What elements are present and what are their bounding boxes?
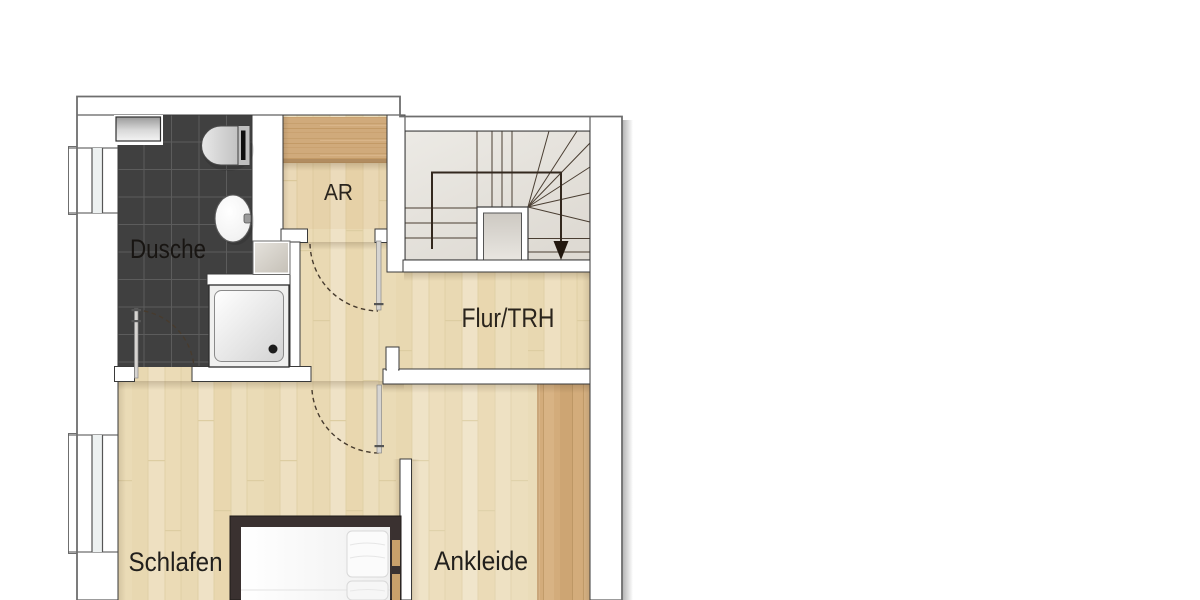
- svg-text:Schlafen: Schlafen: [129, 547, 223, 577]
- svg-text:Dusche: Dusche: [130, 234, 206, 264]
- svg-text:Flur/TRH: Flur/TRH: [462, 303, 555, 333]
- svg-text:AR: AR: [324, 179, 353, 205]
- svg-text:Ankleide: Ankleide: [434, 546, 528, 576]
